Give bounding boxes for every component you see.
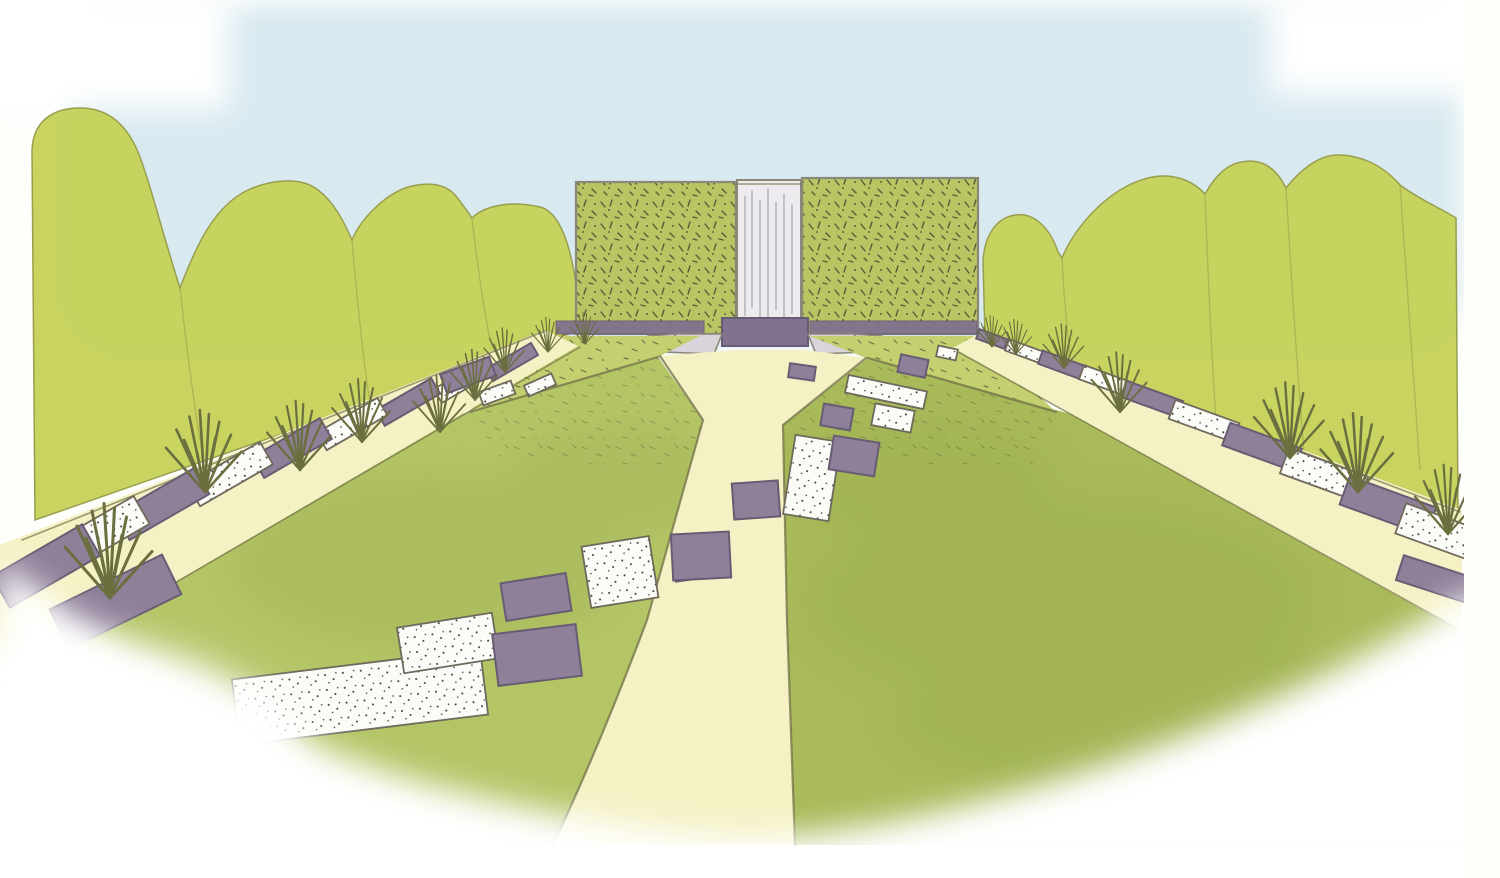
garden-sketch-canvas: Sky Trees Trees Waterfall — [0, 0, 1500, 878]
hedge-base-wall-right — [810, 321, 977, 334]
paving-slab-dark — [492, 624, 582, 686]
water-feature-group: Waterfall — [556, 178, 978, 354]
paving-slab-dark — [671, 532, 731, 581]
garden-illustration: Sky Trees Trees Waterfall — [0, 0, 1500, 878]
hedge-right — [802, 178, 978, 334]
waterfall-basin — [722, 318, 808, 346]
paving-slab-dark — [788, 363, 816, 380]
paving-slab-dark — [829, 436, 880, 477]
paving-slab-light — [582, 536, 659, 608]
right-paper-margin — [1464, 0, 1500, 878]
paper-corner-left — [0, 0, 230, 110]
paving-slab-dark — [732, 480, 780, 519]
hedge-left — [576, 182, 736, 334]
paving-slab-dark — [820, 404, 853, 431]
